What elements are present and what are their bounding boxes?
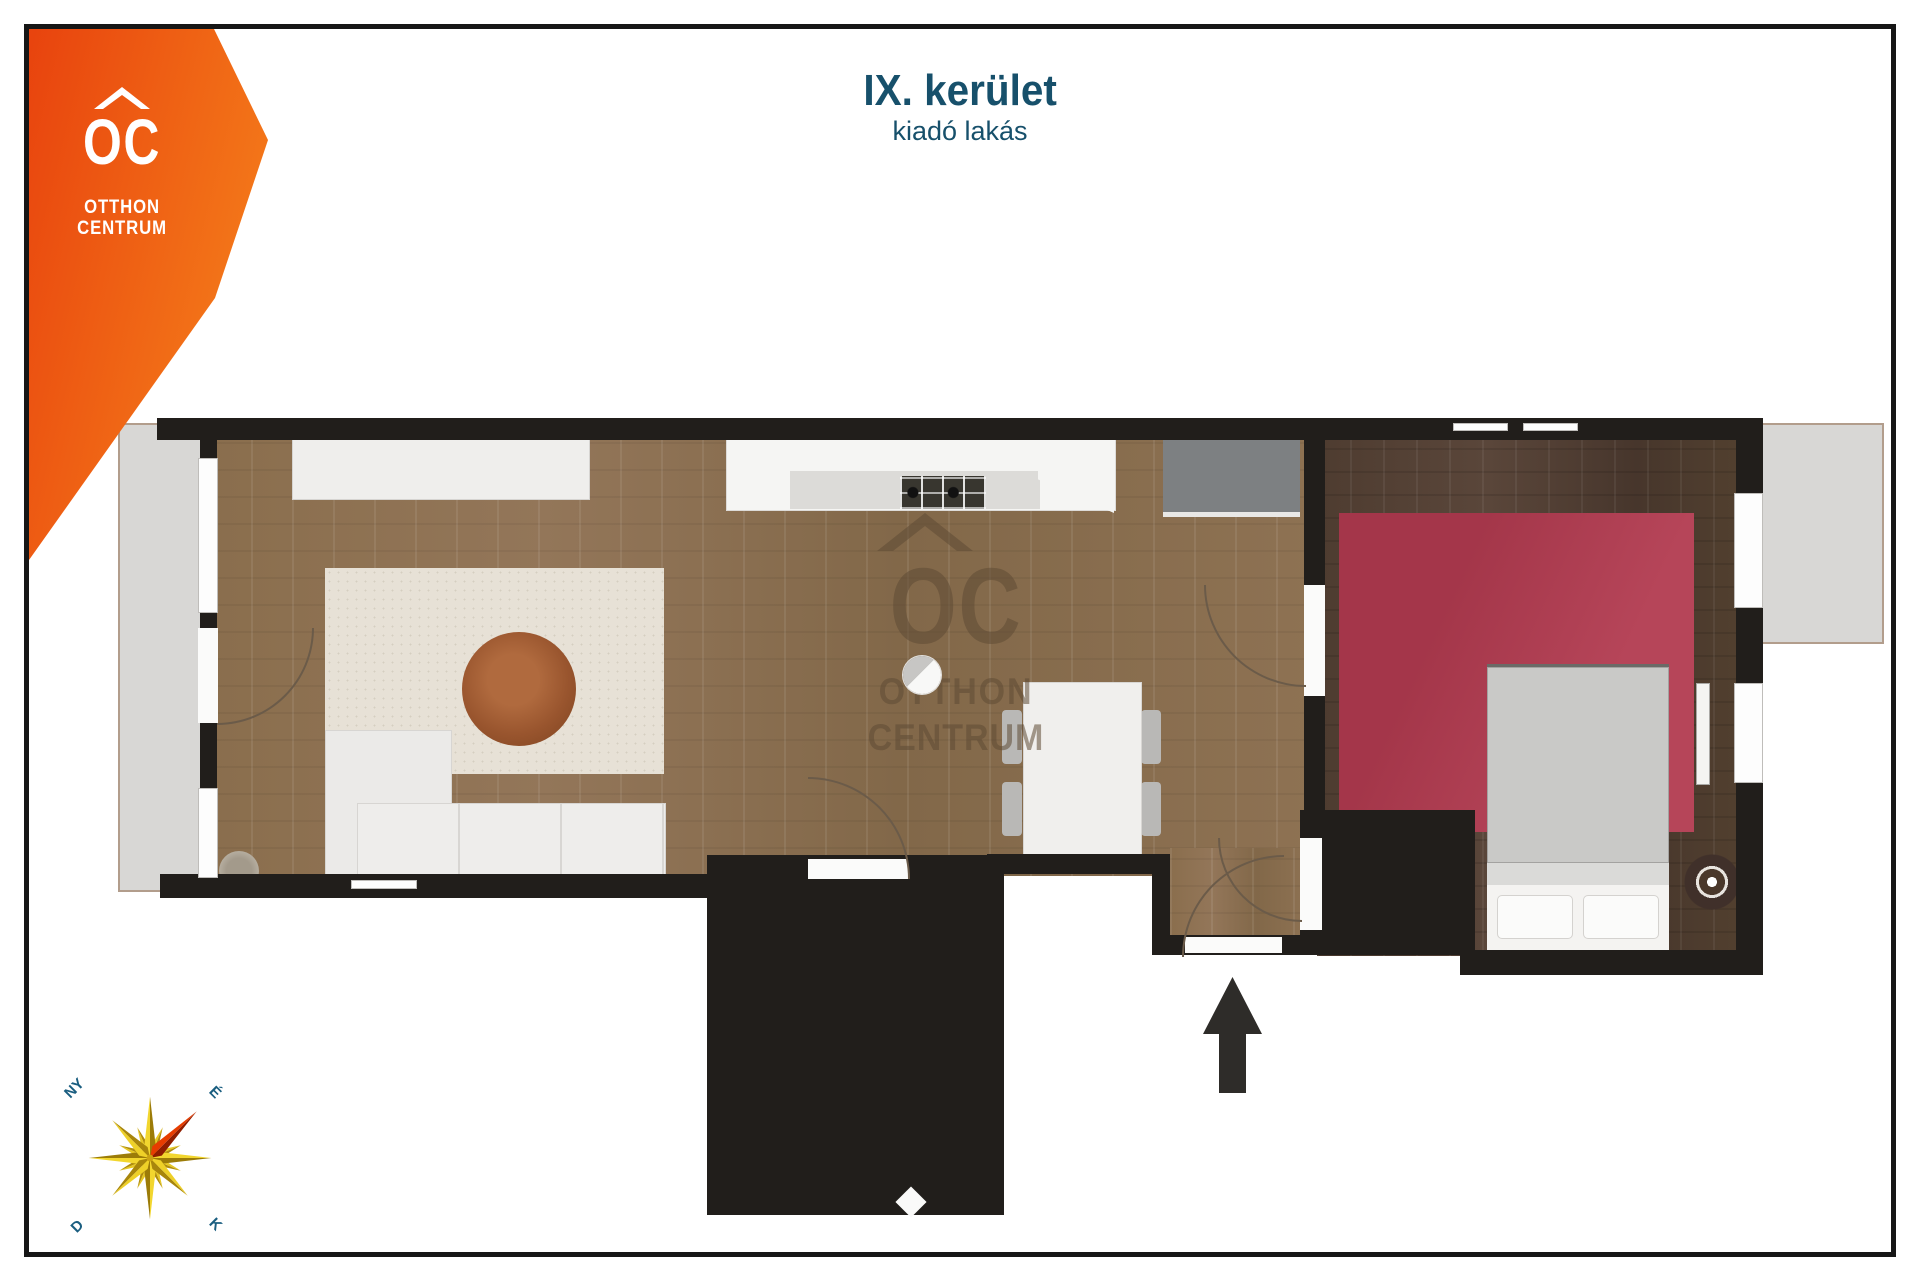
dining-chair	[1141, 782, 1161, 836]
wall-vent	[351, 880, 417, 889]
compass-star-icon	[80, 1088, 220, 1228]
entrance-arrow-icon	[1203, 977, 1262, 1093]
page-title: IX. kerület	[863, 66, 1056, 116]
wall-bedroom-bottom	[1460, 950, 1763, 975]
logo-line2: CENTRUM	[40, 218, 204, 240]
bed-duvet	[1487, 667, 1669, 863]
pendant-lamp	[903, 656, 941, 694]
window	[1734, 493, 1763, 608]
logo-abbr: OC	[49, 110, 194, 174]
cooktop-icon	[900, 476, 986, 509]
brand-logo: OC OTTHON CENTRUM	[29, 29, 309, 564]
page-subtitle: kiadó lakás	[892, 116, 1027, 146]
sideboard	[292, 433, 590, 500]
bathroom-door-opening	[1300, 838, 1322, 930]
wall-vent	[1453, 423, 1508, 431]
bedside-round-table	[1684, 854, 1740, 910]
balcony-door-opening	[198, 628, 218, 723]
window	[198, 788, 218, 878]
bed	[1487, 664, 1669, 950]
pillow	[1583, 895, 1659, 939]
pillow	[1497, 895, 1573, 939]
wall-vent	[1523, 423, 1578, 431]
watermark-abbr: OC	[876, 556, 1036, 655]
watermark: OC OTTHON CENTRUM	[856, 513, 1056, 759]
sofa-seat	[357, 803, 666, 876]
dining-chair	[1141, 710, 1161, 764]
floor-plan: OC OTTHON CENTRUM	[118, 418, 1898, 1220]
coffee-table	[462, 632, 576, 746]
wall-bathroom	[1300, 810, 1475, 955]
radiator	[1696, 683, 1710, 785]
watermark-line1: OTTHON	[864, 671, 1048, 713]
bed-fold	[1487, 863, 1669, 885]
bedroom-door-opening	[1304, 585, 1325, 696]
wardrobe	[1163, 432, 1300, 517]
wall-living-bottom	[160, 874, 740, 898]
window	[1734, 683, 1763, 783]
wall-entry-room	[707, 855, 1004, 1215]
watermark-line2: CENTRUM	[864, 717, 1048, 759]
floorplan-card: OC OTTHON CENTRUM IX. kerület kiadó laká…	[0, 0, 1920, 1281]
compass-rose: NY É D K	[62, 1072, 238, 1248]
dining-chair	[1002, 782, 1022, 836]
balcony-right	[1755, 423, 1884, 644]
logo-line1: OTTHON	[40, 197, 204, 219]
wall-dining-bottom	[987, 854, 1170, 874]
